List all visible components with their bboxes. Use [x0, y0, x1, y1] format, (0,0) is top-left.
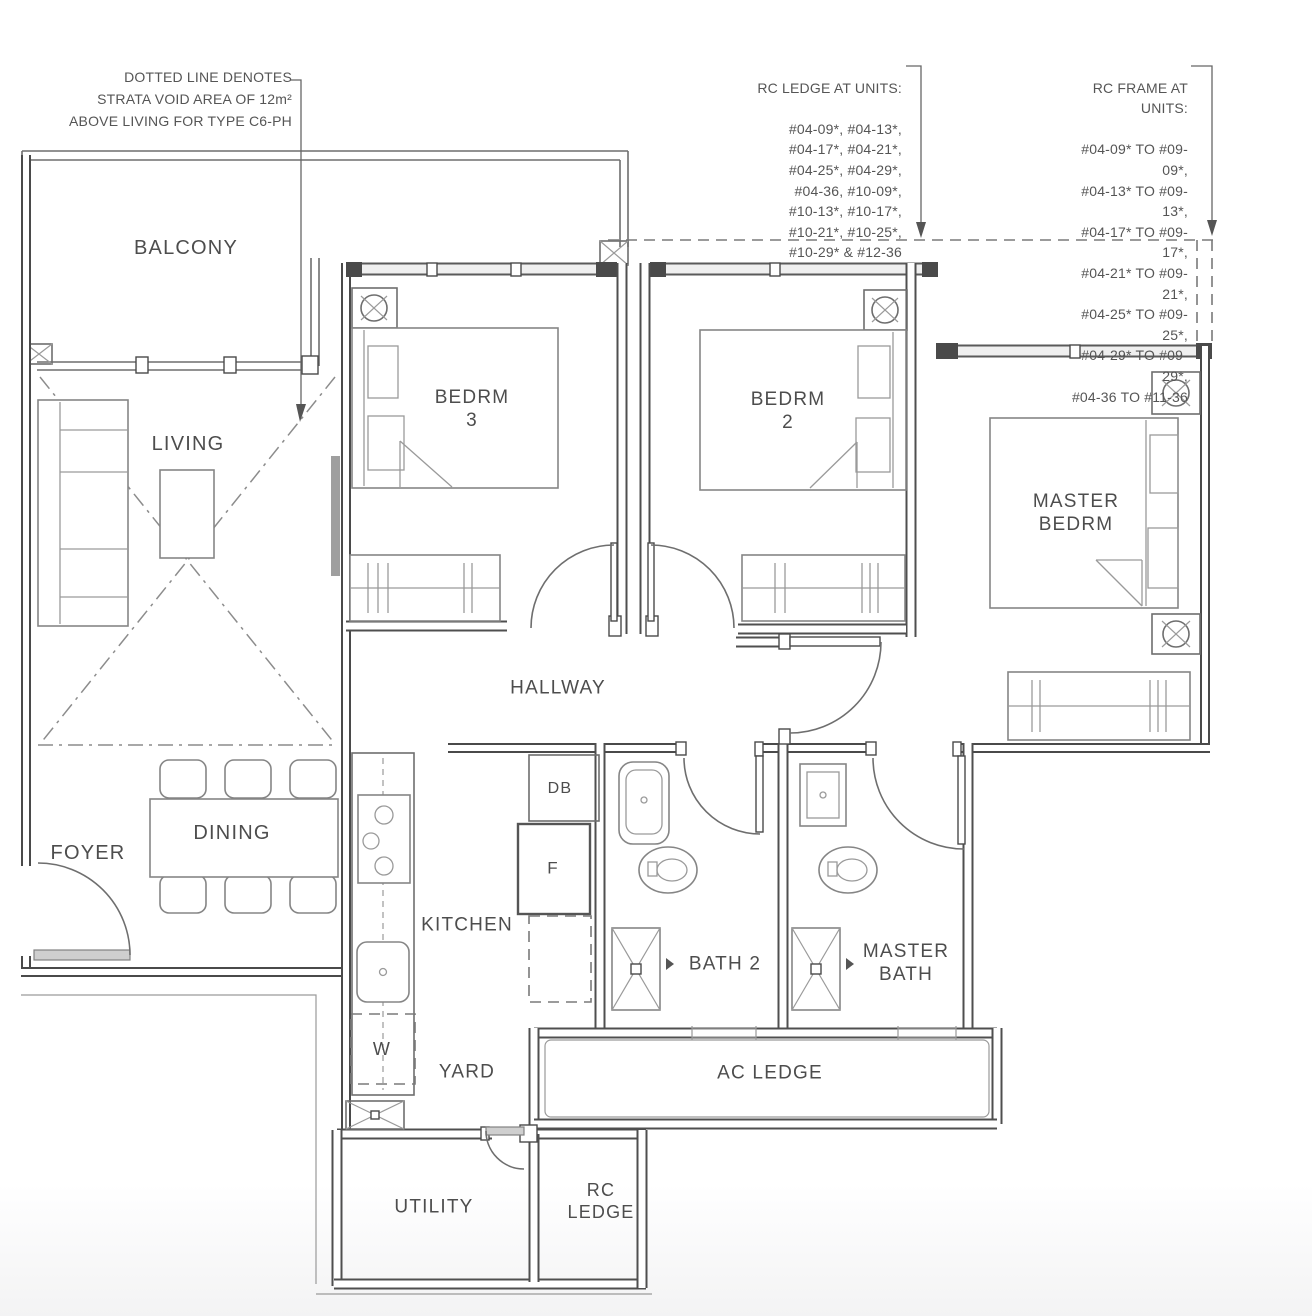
- kitchen-fittings: [346, 753, 415, 1129]
- label-yard: YARD: [439, 1060, 495, 1083]
- bedroom3-furniture: [350, 288, 558, 621]
- bath2-door: [676, 742, 763, 834]
- label-ac-ledge: AC LEDGE: [717, 1061, 823, 1084]
- label-washer: W: [373, 1039, 391, 1061]
- rc-ledge-note-units: #04-09*, #04-13*, #04-17*, #04-21*, #04-…: [757, 119, 902, 263]
- master-bedroom-door: [779, 634, 881, 744]
- label-fridge: F: [547, 859, 559, 880]
- tv-console: [331, 456, 340, 576]
- label-dining: DINING: [193, 821, 270, 845]
- label-utility: UTILITY: [394, 1195, 473, 1218]
- bedroom2-door: [646, 543, 734, 636]
- rc-frame-note: RC FRAME AT UNITS: #04-09* TO #09-09*, #…: [1064, 57, 1188, 428]
- master-bath-fixtures: [792, 764, 956, 1040]
- corner-box-icon: [600, 241, 628, 265]
- label-hallway: HALLWAY: [510, 676, 606, 699]
- coffee-table: [160, 470, 214, 558]
- rc-ledge-note: RC LEDGE AT UNITS: #04-09*, #04-13*, #04…: [757, 57, 902, 284]
- sofa: [38, 400, 128, 626]
- rc-frame-note-title: RC FRAME AT UNITS:: [1064, 78, 1188, 119]
- bath2-fixtures: [612, 762, 756, 1040]
- label-master-bedrm: MASTER BEDRM: [1033, 490, 1119, 536]
- floor-plan-page: BALCONY LIVING BEDRM 3 BEDRM 2 MASTER BE…: [0, 0, 1312, 1316]
- entrance-door: [34, 863, 130, 960]
- label-rc-ledge: RC LEDGE: [567, 1180, 634, 1224]
- label-foyer: FOYER: [51, 841, 126, 865]
- rc-ledge-note-title: RC LEDGE AT UNITS:: [757, 78, 902, 99]
- label-db: DB: [548, 779, 573, 799]
- label-bedrm3: BEDRM 3: [435, 386, 510, 432]
- rc-frame-note-units: #04-09* TO #09-09*, #04-13* TO #09-13*, …: [1064, 139, 1188, 407]
- label-balcony: BALCONY: [134, 236, 238, 260]
- label-bath2: BATH 2: [689, 952, 761, 975]
- label-kitchen: KITCHEN: [421, 913, 513, 936]
- master-bath-door: [866, 742, 965, 849]
- strata-void-note: DOTTED LINE DENOTES STRATA VOID AREA OF …: [69, 66, 292, 132]
- bedroom2-furniture: [700, 290, 907, 621]
- label-bedrm2: BEDRM 2: [751, 388, 826, 434]
- label-master-bath: MASTER BATH: [863, 940, 949, 986]
- label-living: LIVING: [152, 432, 225, 456]
- bedroom3-door: [531, 543, 621, 636]
